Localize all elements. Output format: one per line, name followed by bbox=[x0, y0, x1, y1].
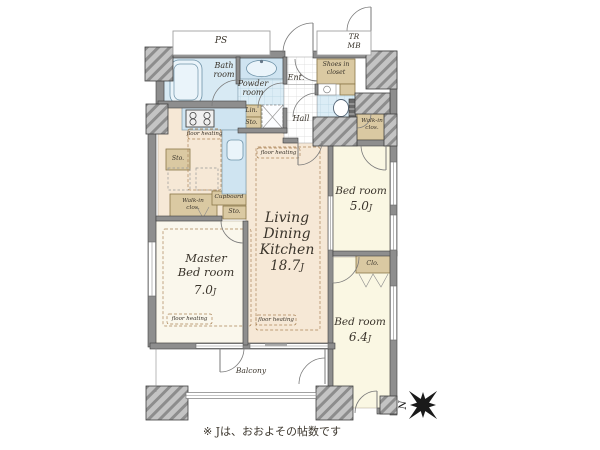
bath-label: Bath bbox=[214, 62, 233, 70]
trunk-label: TR bbox=[349, 33, 360, 41]
storage-label: Sto. bbox=[228, 209, 240, 215]
ldk-label: Living bbox=[265, 211, 309, 225]
pillar bbox=[145, 47, 173, 81]
storage-label: Sto. bbox=[172, 156, 184, 162]
master-label: Bed room bbox=[178, 267, 235, 279]
pillar bbox=[313, 117, 357, 146]
bed5-label: Bed room bbox=[335, 186, 387, 197]
window-sill bbox=[265, 344, 287, 347]
hall-label: Hall bbox=[293, 115, 310, 123]
wall bbox=[158, 101, 246, 108]
floor-plan-image: N PS TR MB Bath room Powder room Ent. Ha… bbox=[0, 0, 600, 450]
walkin-closet-left-label: clos. bbox=[186, 206, 199, 212]
wall bbox=[328, 133, 333, 412]
bath-label: room bbox=[213, 71, 234, 79]
compass: N bbox=[398, 391, 437, 419]
pillar bbox=[384, 114, 397, 146]
wall bbox=[238, 128, 287, 133]
ldk-label: Dining bbox=[263, 227, 310, 241]
master-label: Master bbox=[185, 253, 226, 265]
closet-label: Clo. bbox=[366, 261, 378, 267]
ldk-size-label: 18.7J bbox=[270, 260, 304, 274]
wall bbox=[283, 138, 298, 143]
walkin-closet-left-label: Walk-in bbox=[182, 199, 204, 205]
walkin-closet-right-label: clos. bbox=[365, 126, 378, 132]
bed5-size-label: 5.0J bbox=[350, 200, 372, 212]
vanity-faucet bbox=[260, 60, 263, 63]
floor-heating-label: floor heating bbox=[261, 151, 297, 157]
north-label: N bbox=[398, 399, 409, 410]
front-door-arc bbox=[283, 23, 313, 53]
trunk-door-arc bbox=[347, 7, 371, 31]
powder-label: room bbox=[242, 89, 263, 97]
meter-box-label: MB bbox=[347, 42, 360, 50]
floor-heating-label: floor heating bbox=[172, 317, 208, 323]
ps-label: PS bbox=[215, 37, 227, 46]
bed6-label: Bed room bbox=[334, 317, 386, 328]
shoes-closet-label: Shoes in bbox=[323, 62, 350, 68]
pillar bbox=[146, 386, 188, 420]
wall bbox=[148, 131, 156, 347]
wall bbox=[156, 216, 222, 221]
bed6-size-label: 6.4J bbox=[349, 331, 371, 343]
kitchen-sink bbox=[227, 140, 243, 160]
stove bbox=[186, 110, 214, 127]
hand-wash-basin bbox=[318, 84, 336, 95]
pillar bbox=[316, 386, 353, 420]
toilet-bowl bbox=[334, 100, 349, 117]
pillar bbox=[366, 51, 397, 89]
wall bbox=[283, 57, 287, 84]
shoes-closet-label: closet bbox=[327, 70, 346, 76]
walkin-closet-right-label: Walk-in bbox=[361, 119, 383, 125]
entrance-label: Ent. bbox=[288, 74, 305, 82]
linen-label: Lin. bbox=[245, 108, 257, 114]
ldk-label: Kitchen bbox=[260, 243, 315, 257]
powder-label: Powder bbox=[238, 80, 268, 88]
balcony-label: Balcony bbox=[236, 367, 266, 375]
storage-label: Sto. bbox=[245, 120, 257, 126]
pillar bbox=[355, 93, 390, 114]
master-size-label: 7.0J bbox=[194, 284, 216, 296]
pillar bbox=[146, 104, 168, 134]
pillar bbox=[380, 396, 397, 414]
wall bbox=[243, 221, 248, 345]
floor-heating-label: floor heating bbox=[187, 132, 223, 138]
wall bbox=[333, 251, 397, 256]
shoes-closet-lower bbox=[340, 84, 355, 95]
cupboard-label: Cupboard bbox=[214, 195, 243, 201]
trunk-meter-box bbox=[317, 31, 371, 55]
footnote: ※ Jは、おおよその帖数です bbox=[203, 426, 341, 437]
floor-heating-label: floor heating bbox=[258, 318, 294, 324]
master-bedroom-floor bbox=[156, 221, 243, 343]
